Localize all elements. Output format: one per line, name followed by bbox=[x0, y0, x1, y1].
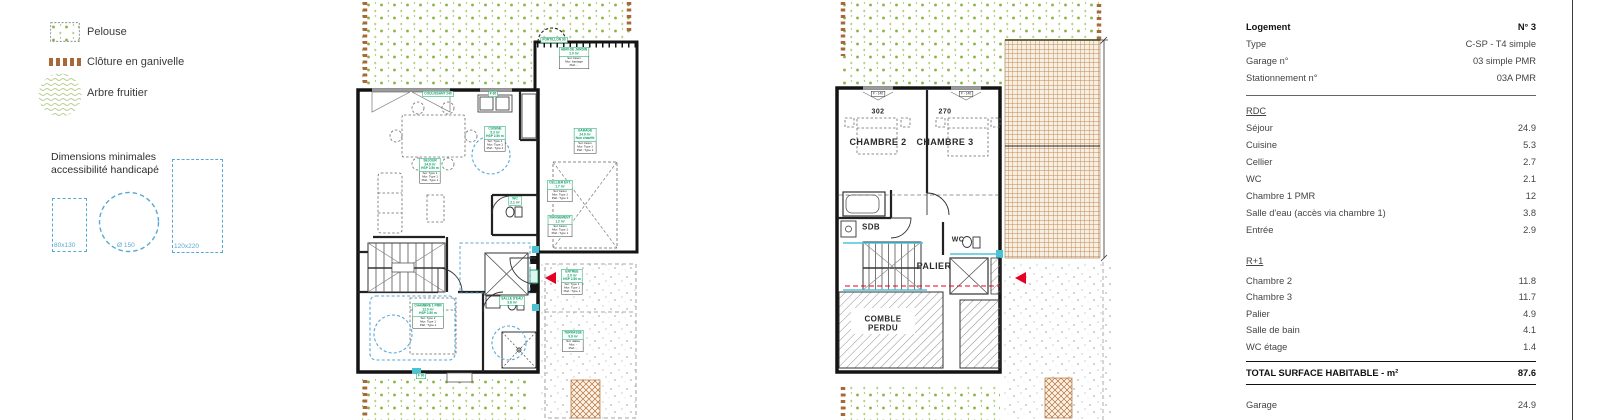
row-label: Logement bbox=[1246, 22, 1290, 32]
rule bbox=[1246, 95, 1536, 96]
plan-text: WC bbox=[958, 235, 983, 253]
row-value: 24.9 bbox=[1518, 123, 1536, 133]
annex-row: Garage24.9 bbox=[1246, 400, 1536, 410]
dim-label-150: Ø 150 bbox=[117, 242, 135, 249]
room-label: F - 140 bbox=[878, 85, 906, 103]
row-label: Salle de bain bbox=[1246, 325, 1300, 335]
cloture-swatch bbox=[49, 58, 83, 66]
accessibility-title-line2: accessibilité handicapé bbox=[51, 164, 159, 177]
row-label: Chambre 2 bbox=[1246, 276, 1292, 286]
legend-label-arbre: Arbre fruitier bbox=[87, 87, 148, 99]
rule bbox=[1246, 361, 1536, 362]
room-label: SALLE D'EAU3.8 m² bbox=[512, 296, 562, 316]
plan-text: 270 bbox=[945, 107, 971, 125]
accessibility-rect-120x220 bbox=[172, 159, 223, 253]
row-value: 1.4 bbox=[1523, 342, 1536, 352]
section-title: RDC bbox=[1246, 106, 1266, 116]
room-label: ABRI DE JARDIN2.0 m²Sol: bétonMur: barda… bbox=[574, 47, 634, 91]
info-row: Garage n°03 simple PMR bbox=[1246, 56, 1536, 66]
room-label: SEJOUR24.9 m²HSP 2.50 mSol: Type 1Mur: T… bbox=[430, 158, 472, 209]
area-row: Chambre 1 PMR12 bbox=[1246, 191, 1536, 201]
r1-labels: F - 140F - 140302270CHAMBRE 2CHAMBRE 3SD… bbox=[815, 0, 1115, 420]
row-value: N° 3 bbox=[1518, 22, 1536, 32]
row-value: 5.3 bbox=[1523, 140, 1536, 150]
section-title: R+1 bbox=[1246, 256, 1263, 266]
row-value: C-SP - T4 simple bbox=[1466, 39, 1536, 49]
row-label: Cellier bbox=[1246, 157, 1272, 167]
row-label: Type bbox=[1246, 39, 1266, 49]
row-value: 2.9 bbox=[1523, 225, 1536, 235]
row-label: Salle d'eau (accès via chambre 1) bbox=[1246, 208, 1386, 218]
row-label: Séjour bbox=[1246, 123, 1273, 133]
legend-label-cloture: Clôture en ganivelle bbox=[87, 56, 184, 68]
area-row: Salle d'eau (accès via chambre 1)3.8 bbox=[1246, 208, 1536, 218]
area-row: Entrée2.9 bbox=[1246, 225, 1536, 235]
area-row: Séjour24.9 bbox=[1246, 123, 1536, 133]
row-label: Stationnement n° bbox=[1246, 73, 1317, 83]
room-label: WC2.1 m² bbox=[515, 196, 541, 216]
row-label: Cuisine bbox=[1246, 140, 1277, 150]
row-value: 03A PMR bbox=[1497, 73, 1536, 83]
area-row: Chambre 311.7 bbox=[1246, 292, 1536, 302]
plan-text: SDB bbox=[871, 223, 907, 241]
sheet-border-line bbox=[1572, 0, 1573, 420]
architectural-sheet: Pelouse Clôture en ganivelle Arbre fruit… bbox=[0, 0, 1600, 420]
legend: Pelouse Clôture en ganivelle Arbre fruit… bbox=[0, 0, 260, 280]
row-value: 11.7 bbox=[1519, 292, 1536, 302]
room-label: GARAGE24.9 m²Non chaufféSol: bétonMur: T… bbox=[585, 128, 630, 179]
room-label: F 90 bbox=[421, 367, 441, 385]
plan-text: 302 bbox=[878, 107, 904, 125]
room-label: CHAMBRE 1 PMR12.0 m²HSP 2.50 mSol: Type … bbox=[428, 303, 490, 354]
row-label: Chambre 1 PMR bbox=[1246, 191, 1315, 201]
plan-text: CHAMBRE 3 bbox=[945, 137, 1059, 158]
info-row: TypeC-SP - T4 simple bbox=[1246, 39, 1536, 49]
row-label: Garage bbox=[1246, 400, 1277, 410]
dim-label-120x220: 120x220 bbox=[174, 243, 199, 250]
dim-label-80x130: 80x130 bbox=[54, 242, 75, 249]
arbre-swatch bbox=[37, 72, 83, 118]
info-row: Stationnement n°03A PMR bbox=[1246, 73, 1536, 83]
info-row: LogementN° 3 bbox=[1246, 22, 1536, 32]
room-label: RANGEMENT1.2 m²Sol: bétonMur: Type 1Plaf… bbox=[560, 215, 609, 259]
row-label: Garage n° bbox=[1246, 56, 1288, 66]
room-label: F 60 bbox=[493, 85, 513, 103]
row-value: 2.7 bbox=[1523, 157, 1536, 167]
floor-plan-rdc: COULISSANT 240F 60PORTILLON 90ABRI DE JA… bbox=[352, 0, 645, 420]
row-value: 11.8 bbox=[1519, 276, 1536, 286]
spec-table: LogementN° 3TypeC-SP - T4 simpleGarage n… bbox=[1246, 0, 1536, 420]
area-row: Cuisine5.3 bbox=[1246, 140, 1536, 150]
legend-label-pelouse: Pelouse bbox=[87, 26, 127, 38]
floor-plan-r1: F - 140F - 140302270CHAMBRE 2CHAMBRE 3SD… bbox=[815, 0, 1115, 420]
pelouse-swatch bbox=[50, 22, 80, 42]
row-label: WC bbox=[1246, 174, 1262, 184]
area-row: Chambre 211.8 bbox=[1246, 276, 1536, 286]
row-value: 24.9 bbox=[1518, 400, 1536, 410]
area-row: WC étage1.4 bbox=[1246, 342, 1536, 352]
plan-text: PALIER bbox=[934, 261, 1003, 282]
row-value: 87.6 bbox=[1518, 368, 1536, 378]
room-label: TERRASSE9.9 m²Sol: dallesMur: -Plaf.: - bbox=[573, 330, 615, 374]
row-value: 2.1 bbox=[1523, 174, 1536, 184]
row-value: 4.1 bbox=[1523, 325, 1536, 335]
row-value: 3.8 bbox=[1523, 208, 1536, 218]
total-row: TOTAL SURFACE HABITABLE - m²87.6 bbox=[1246, 368, 1536, 378]
row-label: Entrée bbox=[1246, 225, 1273, 235]
area-row: Cellier2.7 bbox=[1246, 157, 1536, 167]
row-value: 12 bbox=[1526, 191, 1536, 201]
room-label: F - 140 bbox=[966, 85, 994, 103]
accessibility-title-line1: Dimensions minimales bbox=[51, 151, 156, 164]
row-label: WC étage bbox=[1246, 342, 1287, 352]
row-label: Chambre 3 bbox=[1246, 292, 1292, 302]
room-label: ENTREE2.9 m²HSP 2.50 mSol: Type 1Mur: Ty… bbox=[572, 269, 614, 320]
rdc-labels: COULISSANT 240F 60PORTILLON 90ABRI DE JA… bbox=[352, 0, 645, 420]
area-row: WC2.1 bbox=[1246, 174, 1536, 184]
row-label: TOTAL SURFACE HABITABLE - m² bbox=[1246, 368, 1398, 378]
row-value: 4.9 bbox=[1523, 309, 1536, 319]
area-row: Salle de bain4.1 bbox=[1246, 325, 1536, 335]
room-label: CUISINE5.3 m²HSP 2.50 mSol: Type 1Mur: T… bbox=[495, 126, 537, 177]
rule bbox=[1246, 384, 1536, 385]
row-label: Palier bbox=[1246, 309, 1270, 319]
area-row: Palier4.9 bbox=[1246, 309, 1536, 319]
row-value: 03 simple PMR bbox=[1473, 56, 1536, 66]
plan-text: PERDU bbox=[883, 324, 943, 342]
